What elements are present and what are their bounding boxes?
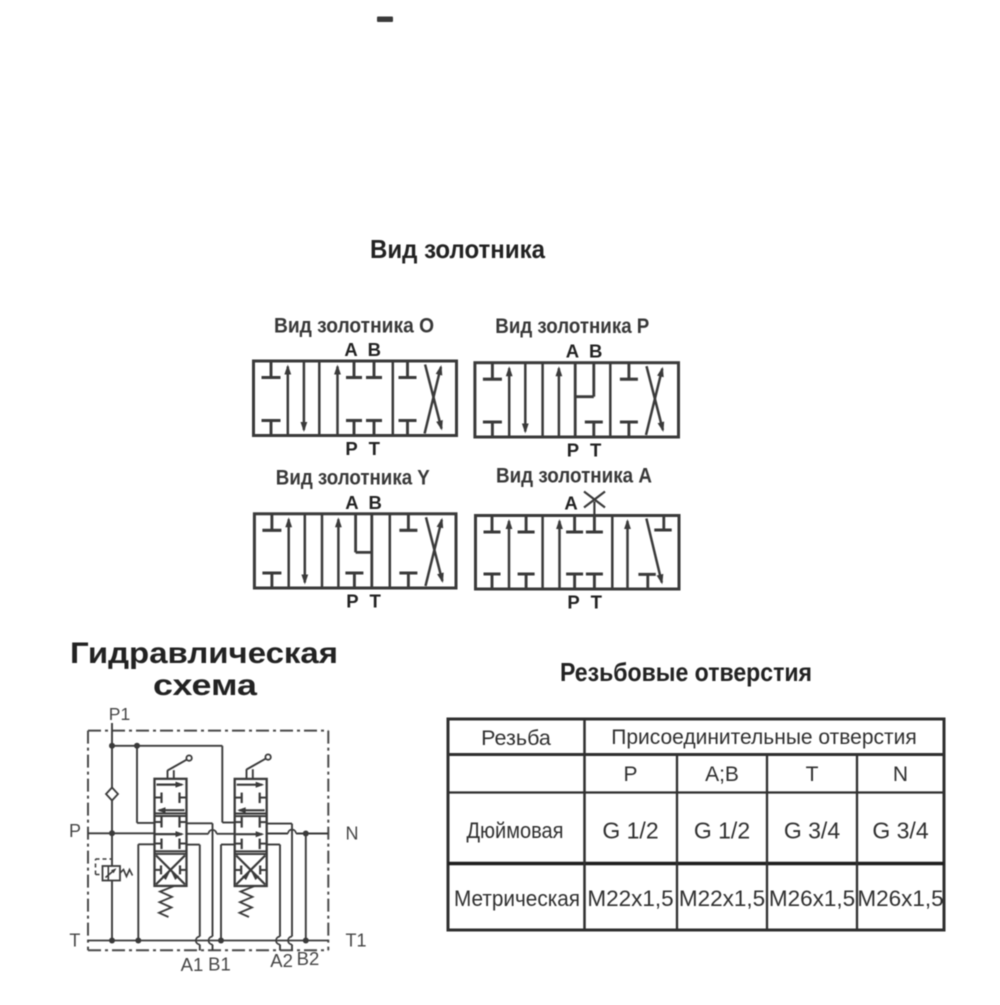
svg-text:P: P [69,821,81,841]
svg-text:M26x1,5: M26x1,5 [857,886,943,911]
svg-text:B: B [589,341,602,362]
svg-text:M22x1,5: M22x1,5 [587,886,673,911]
svg-text:T: T [369,438,381,459]
svg-text:Резьбовые отверстия: Резьбовые отверстия [560,657,812,687]
svg-text:G 3/4: G 3/4 [872,818,928,844]
svg-text:G 1/2: G 1/2 [694,818,750,844]
svg-text:A: A [564,493,577,514]
svg-text:T: T [806,763,819,786]
svg-text:B: B [368,339,381,360]
svg-text:P: P [346,591,358,612]
svg-text:T1: T1 [345,931,366,951]
svg-text:A: A [345,492,358,513]
svg-text:P1: P1 [109,704,130,724]
svg-text:N: N [346,824,359,844]
svg-text:Метрическая: Метрическая [454,886,580,911]
svg-text:A1: A1 [181,954,204,975]
svg-text:M26x1,5: M26x1,5 [769,886,855,911]
svg-text:B2: B2 [297,948,320,969]
svg-text:Вид золотника О: Вид золотника О [274,314,434,338]
svg-text:A2: A2 [270,950,293,971]
svg-text:B1: B1 [208,954,231,975]
svg-text:Резьба: Резьба [481,726,551,750]
svg-text:Дюймовая: Дюймовая [467,818,564,843]
svg-text:Вид золотника Y: Вид золотника Y [276,466,430,490]
svg-text:B: B [369,492,382,513]
svg-text:T: T [590,440,602,461]
svg-text:Вид золотника Р: Вид золотника Р [495,314,649,338]
svg-text:T: T [69,931,80,951]
svg-text:A;B: A;B [705,763,739,786]
svg-text:P: P [623,763,637,786]
svg-text:A: A [566,341,579,362]
svg-text:схема: схема [153,669,257,702]
svg-text:P: P [567,592,579,613]
svg-text:T: T [370,591,382,612]
svg-text:G 1/2: G 1/2 [602,818,658,844]
svg-text:Вид золотника А: Вид золотника А [496,464,652,488]
svg-text:A: A [344,339,357,360]
svg-text:N: N [893,763,908,786]
svg-text:G 3/4: G 3/4 [784,818,840,844]
svg-text:Вид золотника: Вид золотника [370,234,545,264]
svg-text:P: P [567,440,579,461]
svg-text:T: T [591,592,603,613]
svg-text:M22x1,5: M22x1,5 [679,886,765,911]
svg-text:P: P [345,438,357,459]
svg-text:Присоединительные отверстия: Присоединительные отверстия [611,726,917,749]
svg-text:Гидравлическая: Гидравлическая [70,637,338,670]
